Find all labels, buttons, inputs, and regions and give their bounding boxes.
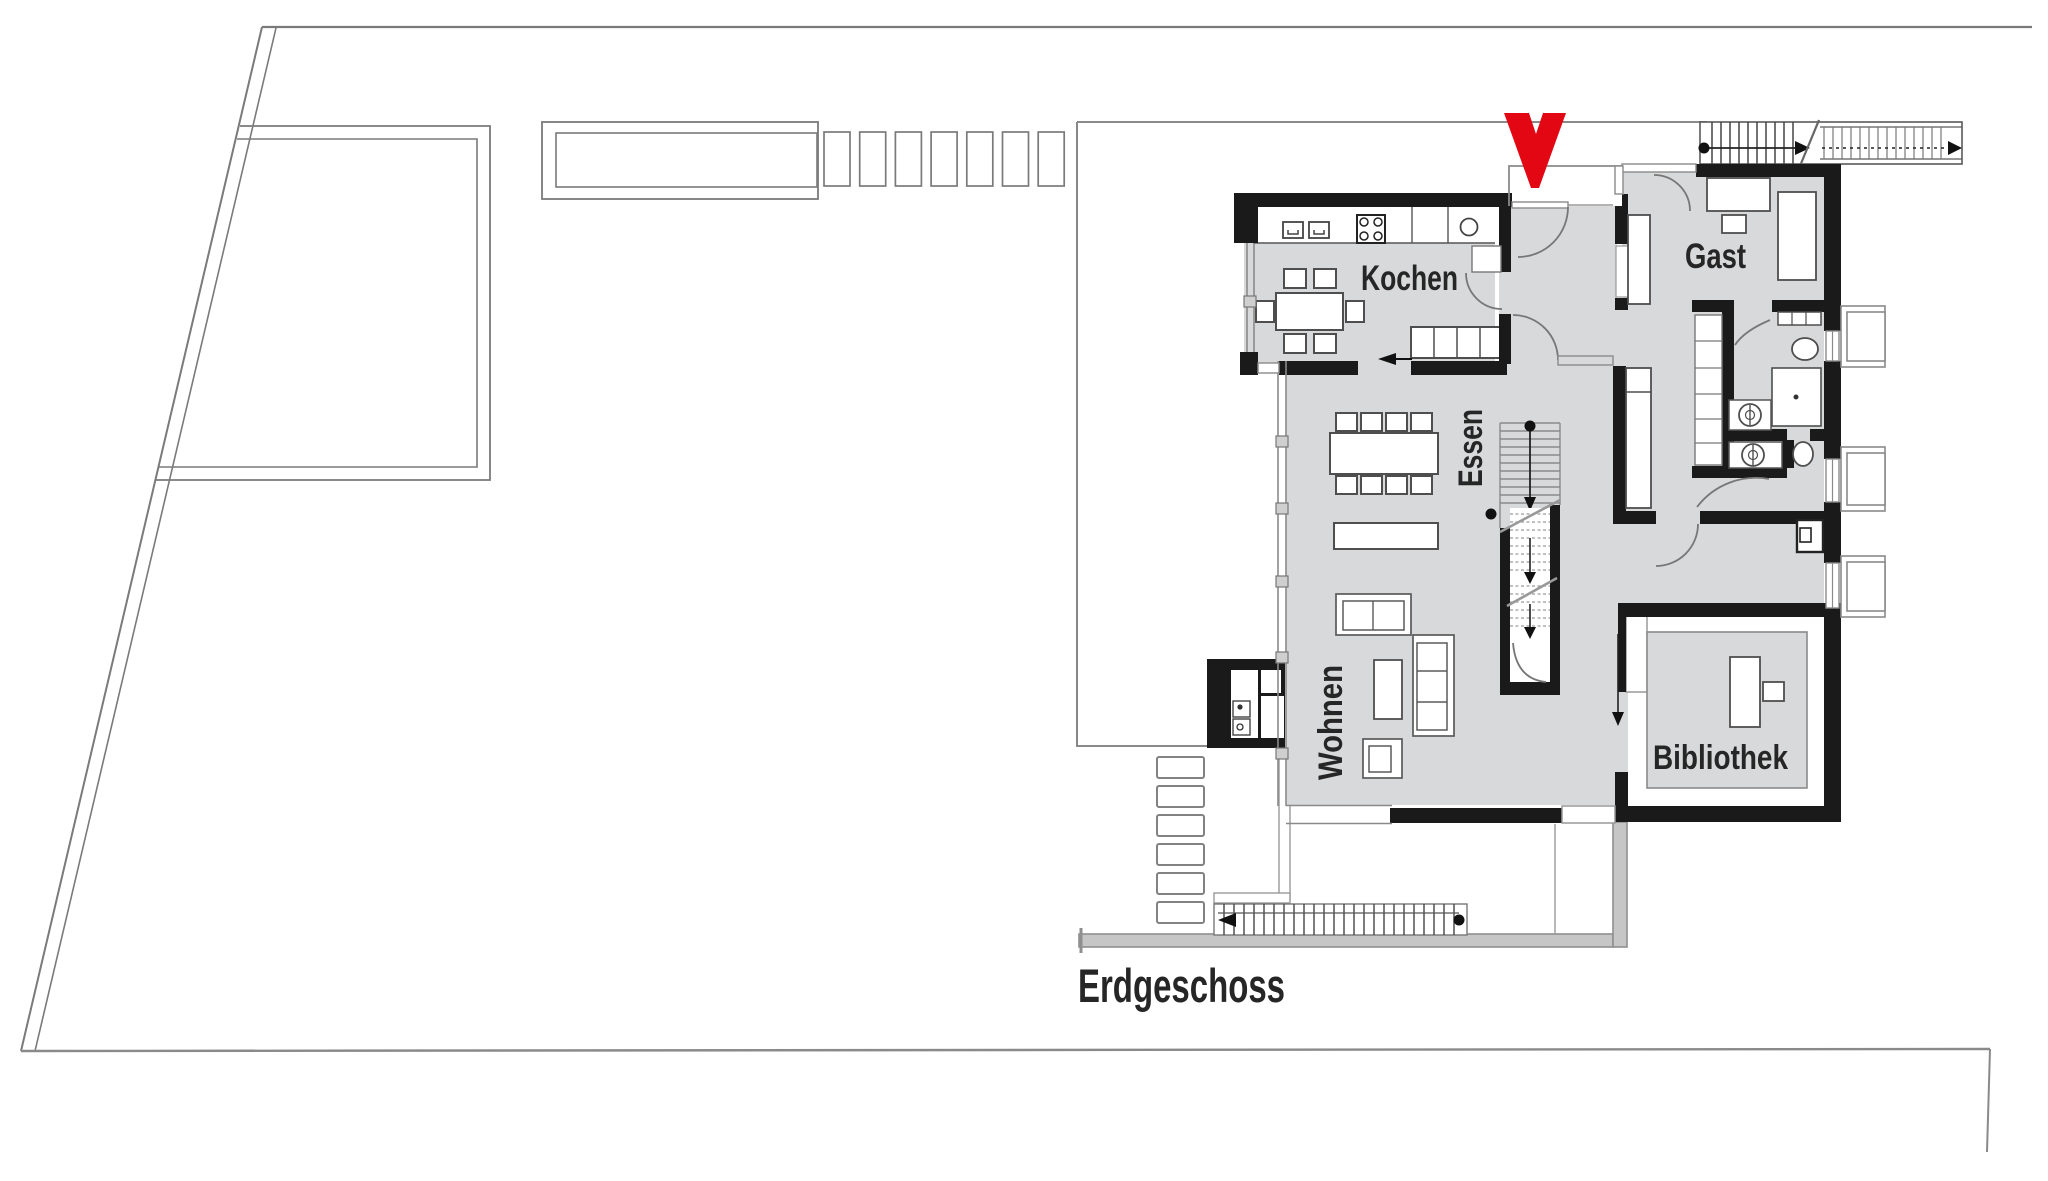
svg-text:Gast: Gast (1685, 237, 1746, 276)
svg-text:Essen: Essen (1452, 409, 1490, 487)
svg-text:Wohnen: Wohnen (1312, 665, 1350, 780)
svg-text:Kochen: Kochen (1361, 259, 1458, 298)
svg-text:Bibliothek: Bibliothek (1653, 739, 1788, 777)
svg-text:Erdgeschoss: Erdgeschoss (1078, 959, 1285, 1012)
